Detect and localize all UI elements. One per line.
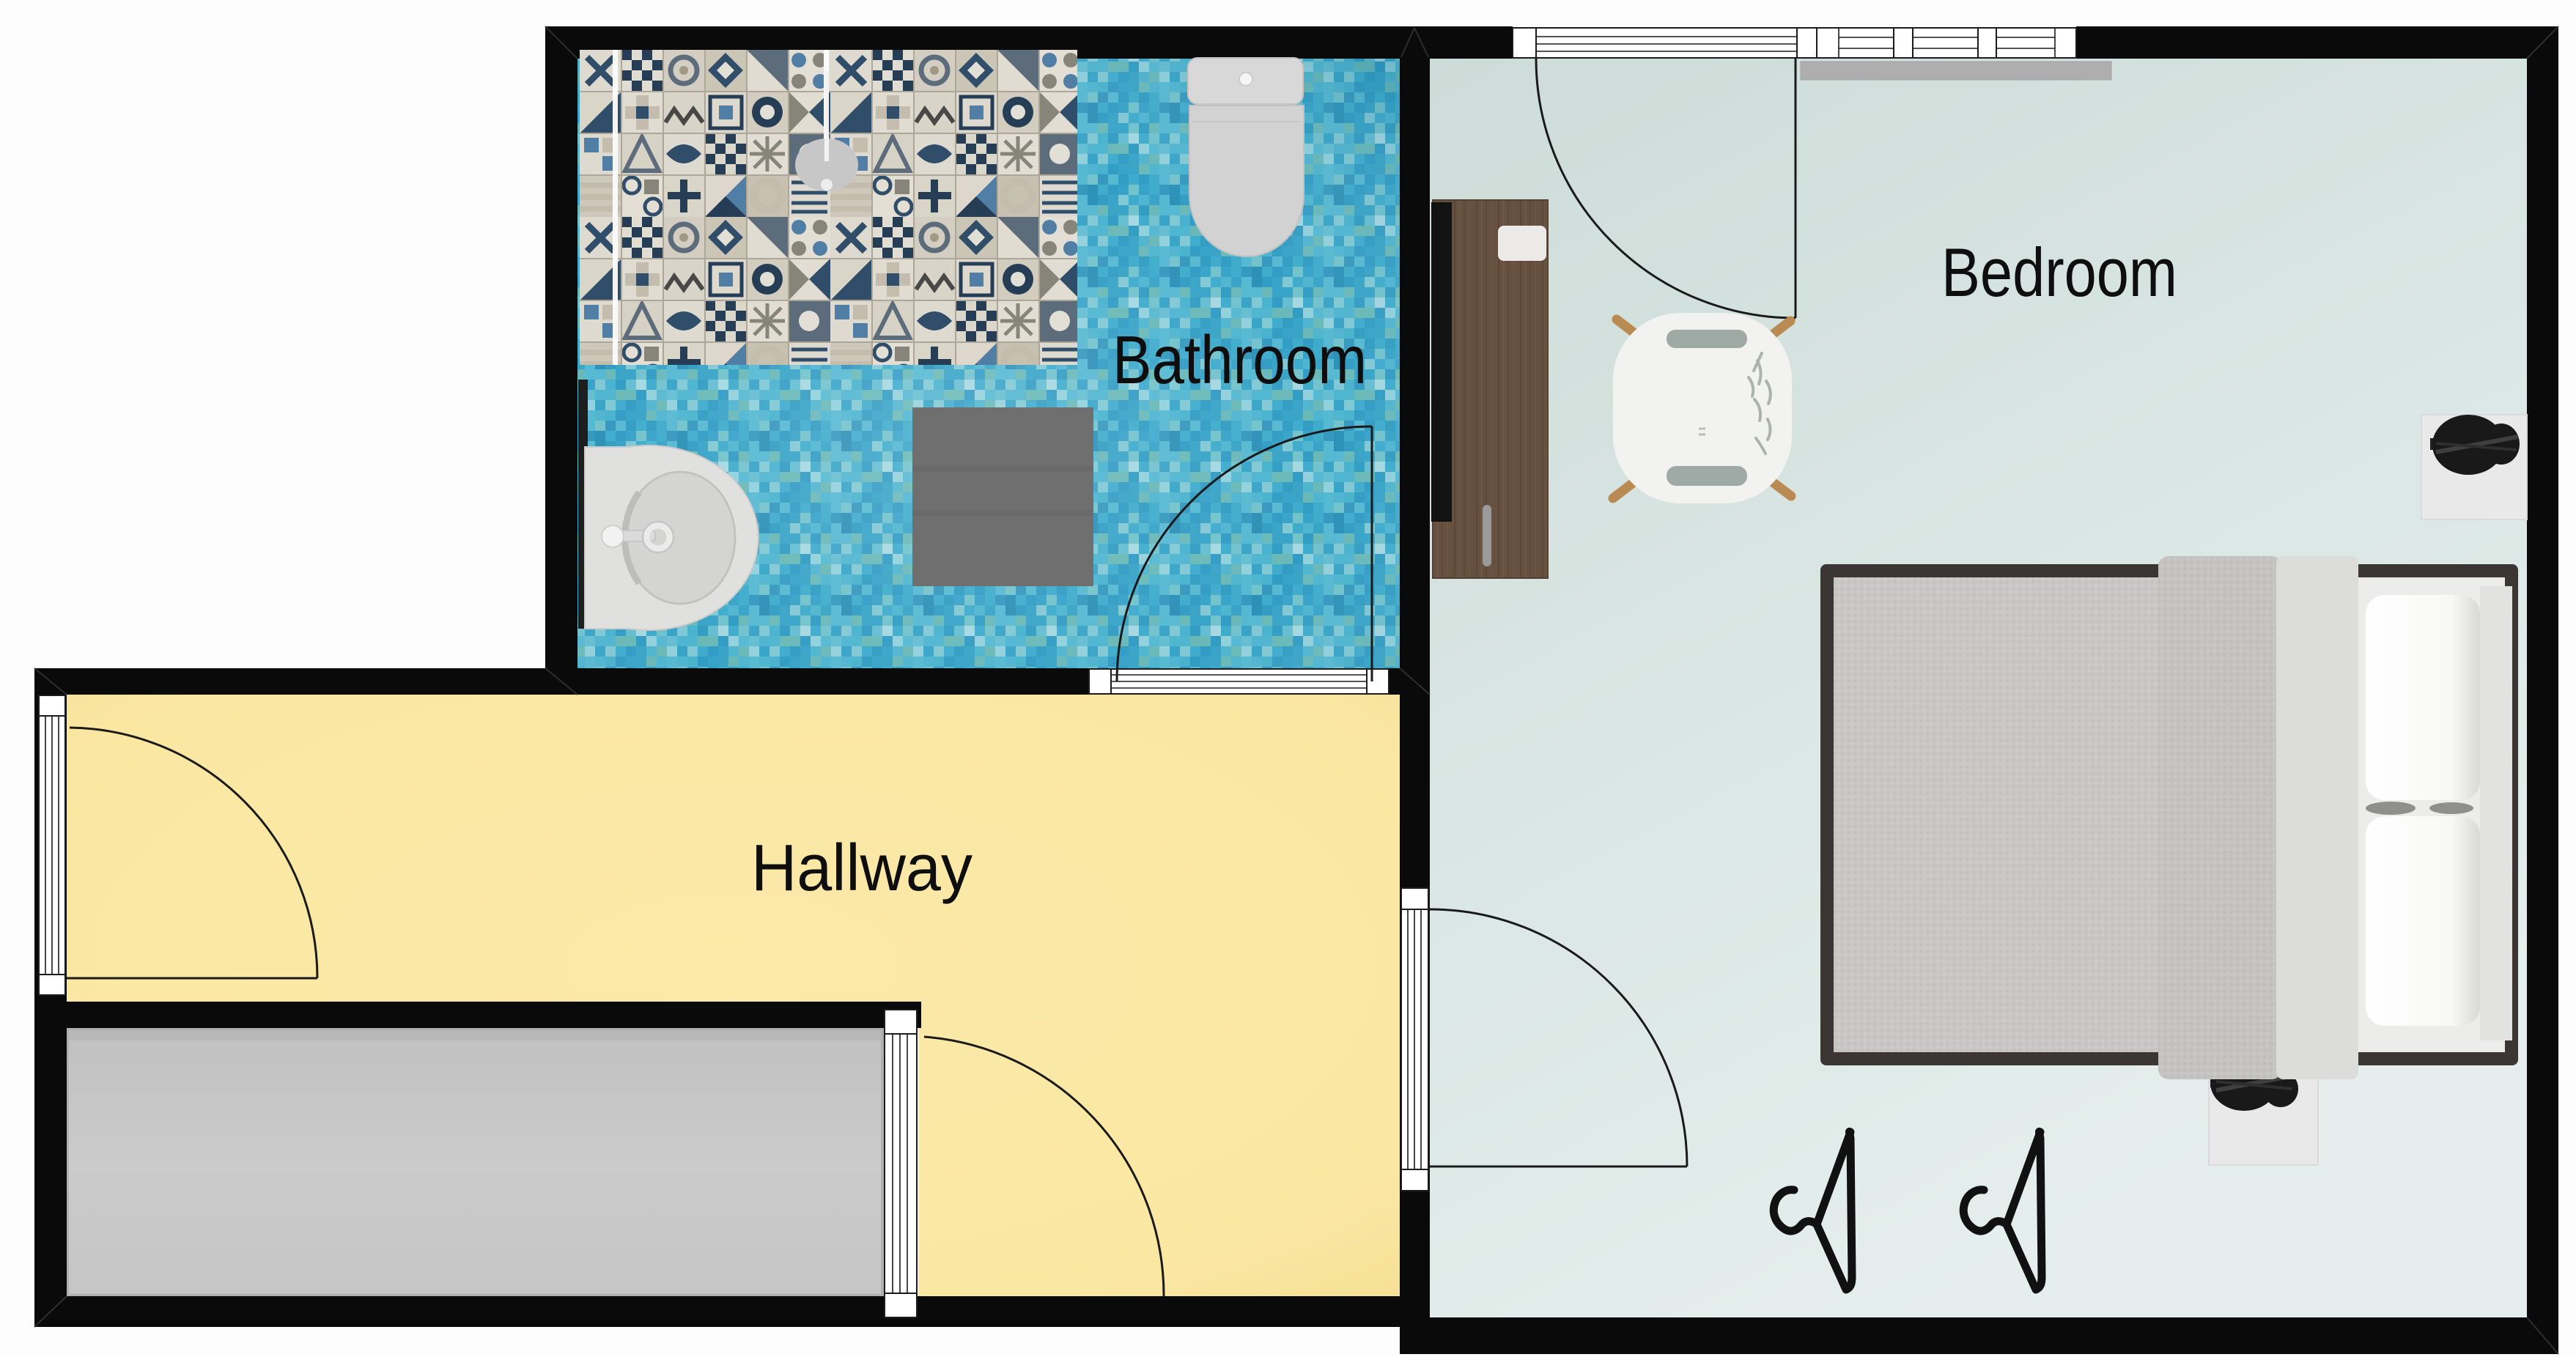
svg-text:Bathroom: Bathroom [1112,322,1367,398]
svg-text:Bedroom: Bedroom [1941,234,2177,311]
svg-text:Hallway: Hallway [751,832,973,905]
